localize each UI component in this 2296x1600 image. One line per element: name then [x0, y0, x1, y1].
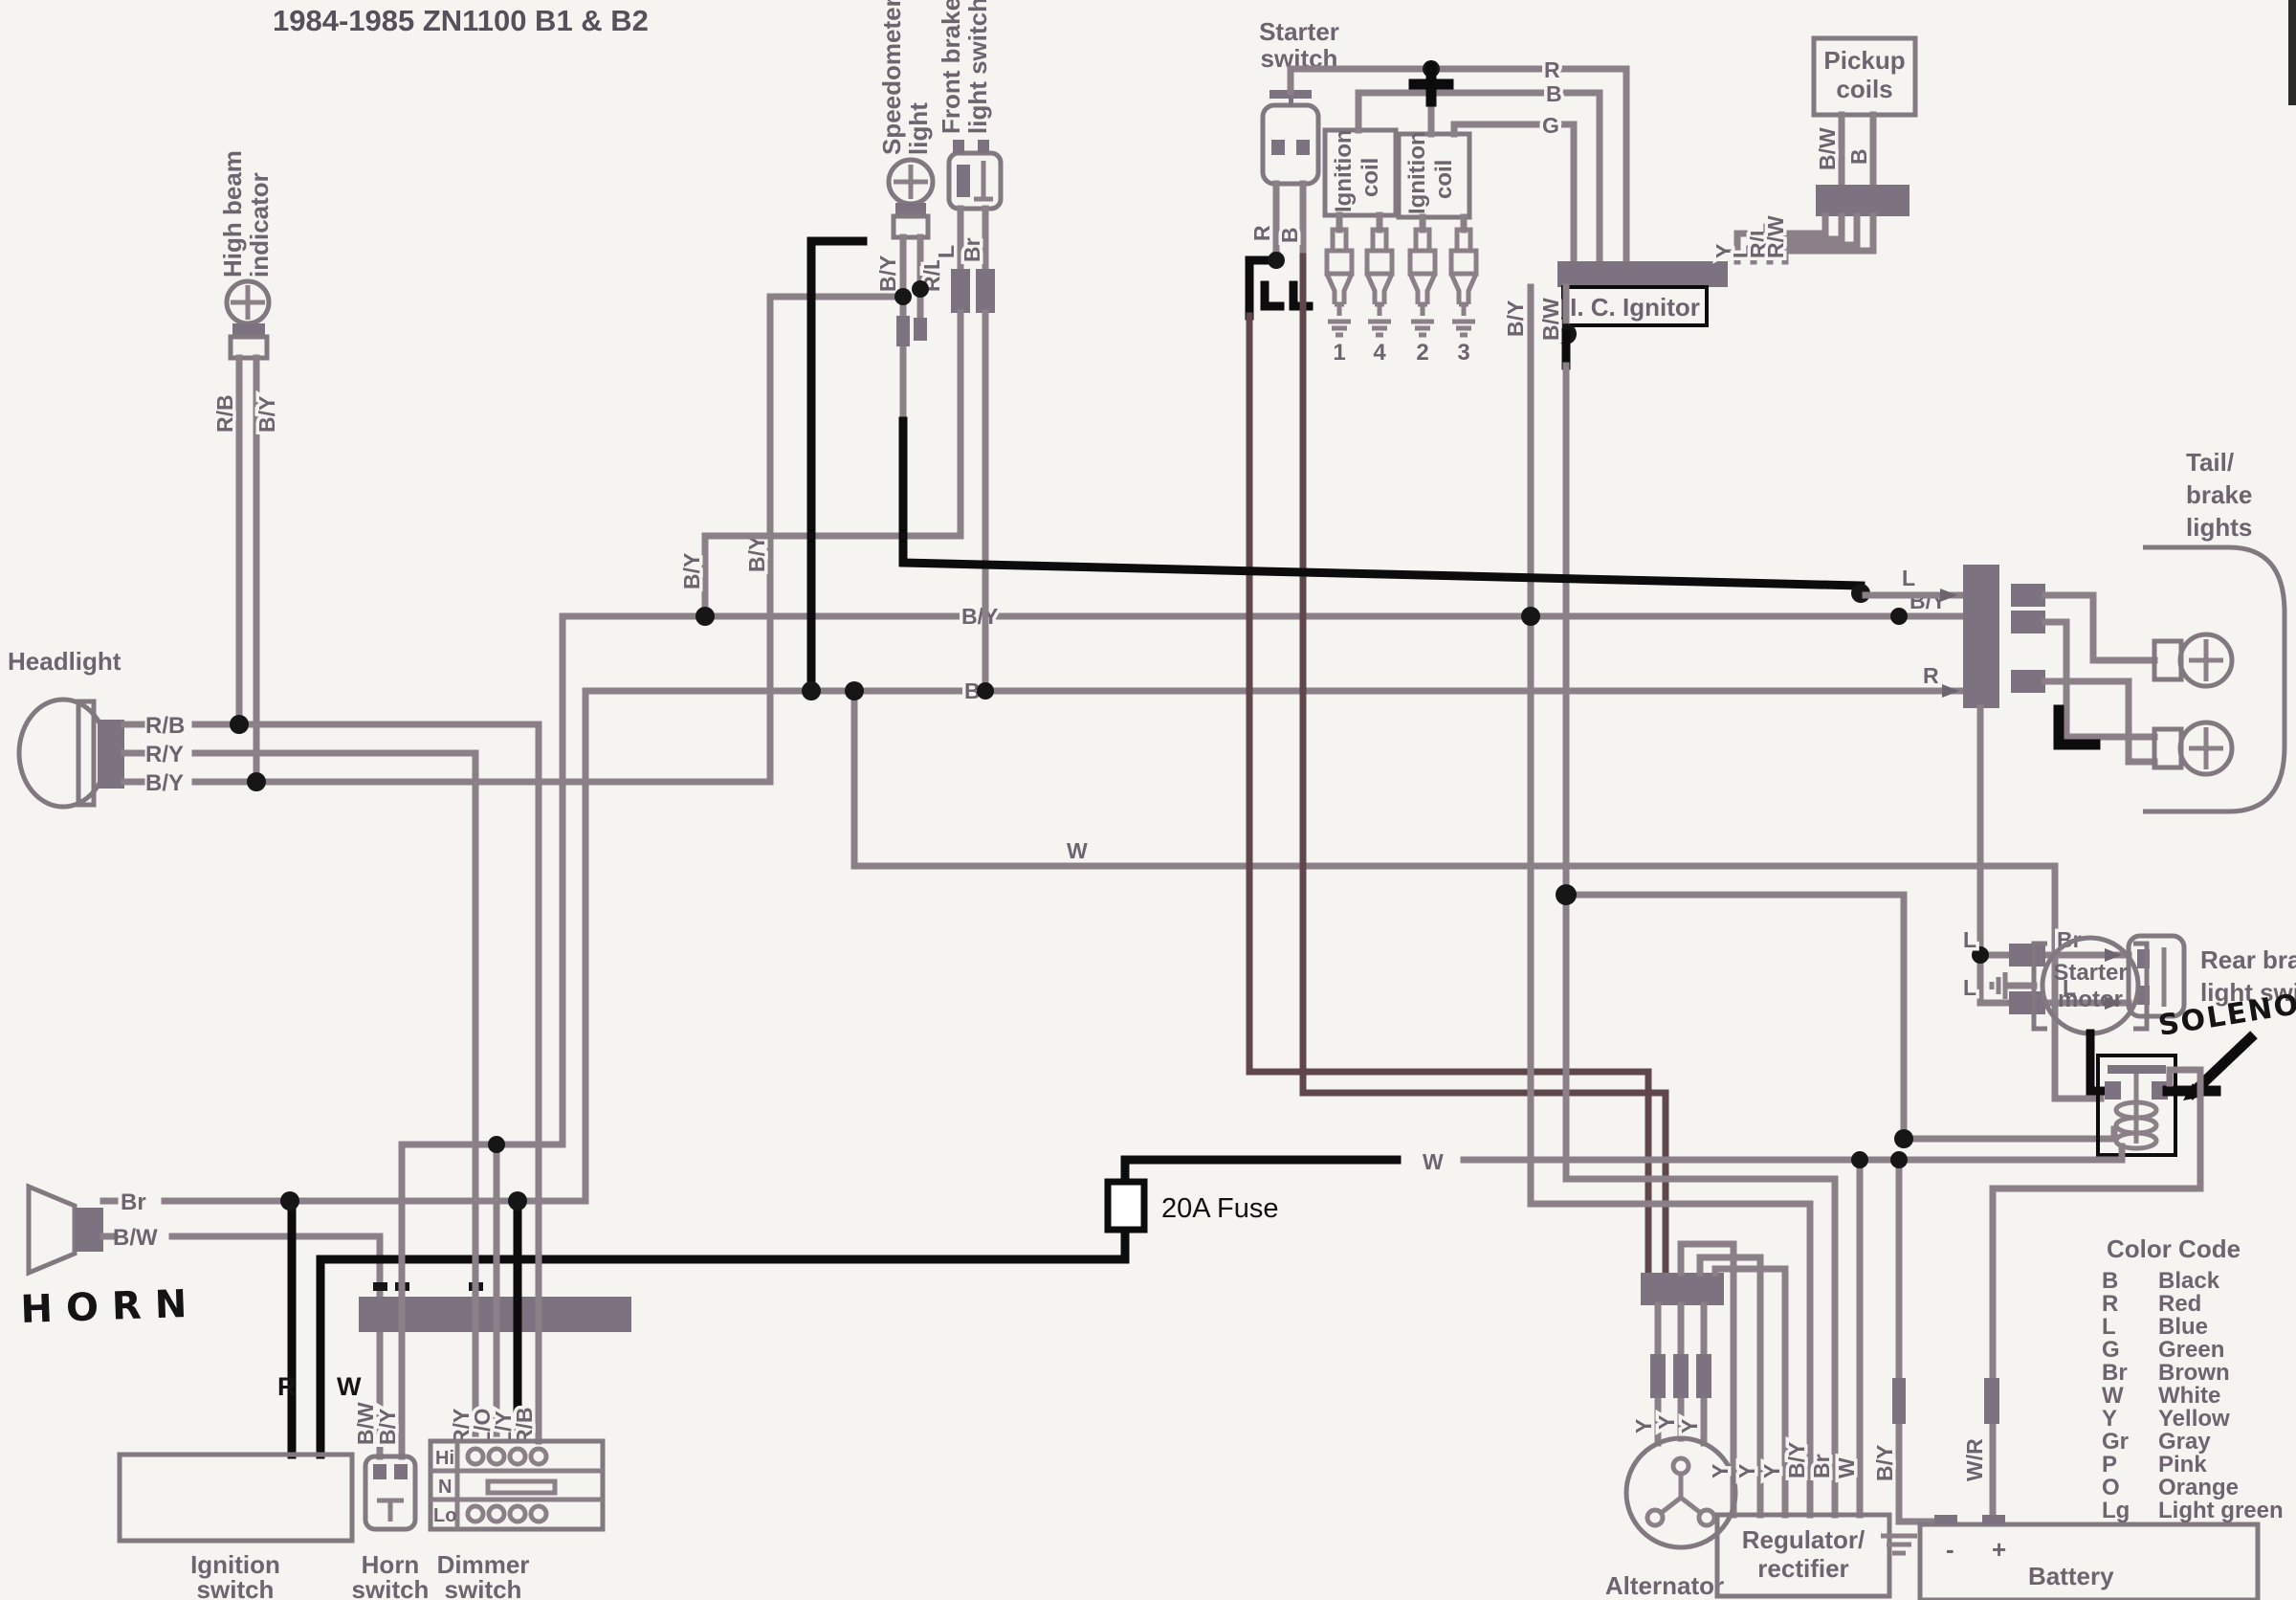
starter-switch-wire-b: B: [1277, 227, 1302, 243]
starter-motor-label-1: Starter: [2053, 960, 2127, 986]
alternator-wire-y1: Y: [1631, 1419, 1656, 1433]
high-beam-wire-by: B/Y: [254, 396, 279, 433]
scan-edge-artifact: [2288, 0, 2296, 105]
starter-switch-label-1: Starter: [1259, 17, 1339, 46]
legend-code: Br: [2102, 1360, 2128, 1386]
reg-wire-w: W: [1834, 1457, 1859, 1478]
ignitor-left-by: B/Y: [1503, 300, 1528, 337]
high-beam-indicator: R/B B/Y High beam indicator: [212, 150, 279, 782]
front-brake-light-switch: L Br Front brake light switch B/Y: [679, 0, 1001, 691]
alternator-wire-y2: Y: [1654, 1415, 1679, 1430]
reg-wire-y3: Y: [1759, 1464, 1784, 1478]
speedo-label-1: Speedometer: [877, 0, 906, 155]
legend-name: Orange: [2158, 1475, 2239, 1500]
wire-label-by-bus: B/Y: [961, 604, 998, 629]
front-brake-label-2: light switch: [963, 0, 992, 134]
front-brake-label-1: Front brake: [937, 0, 965, 134]
horn-wire-bw: B/W: [113, 1225, 158, 1251]
high-beam-wire-rb: R/B: [212, 394, 237, 433]
alternator-label: Alternator: [1605, 1571, 1724, 1600]
legend-code: R: [2102, 1291, 2118, 1317]
high-beam-label-2: indicator: [245, 172, 274, 278]
tail-label-2: brake: [2186, 480, 2252, 509]
horn-switch-wire-by: B/Y: [375, 1409, 400, 1445]
spark-plugs: 1 4 2 3: [1327, 215, 1476, 366]
legend-code: B: [2102, 1268, 2118, 1294]
dimmer-pos-lo: Lo: [433, 1505, 456, 1526]
alternator-wire-y3: Y: [1677, 1419, 1702, 1433]
headlight: Headlight R/B R/Y B/Y: [8, 647, 770, 807]
legend-name: Light green: [2158, 1498, 2284, 1523]
reg-wire-y2: Y: [1734, 1464, 1759, 1478]
coil-bus-r: R: [1544, 57, 1560, 82]
wire-label-l-tail: L: [1902, 566, 1915, 590]
page-title: 1984-1985 ZN1100 B1 & B2: [273, 4, 649, 37]
legend-code: Y: [2102, 1406, 2117, 1432]
legend-name: Pink: [2158, 1452, 2207, 1478]
legend-code: P: [2102, 1452, 2117, 1478]
high-beam-label-1: High beam: [218, 150, 247, 278]
ignition-coil-2-label-1: Ignition: [1404, 131, 1430, 214]
wiring-diagram-page: 1984-1985 ZN1100 B1 & B2 B/Y Br W B/Y R …: [0, 0, 2296, 1600]
legend-code: O: [2102, 1475, 2120, 1500]
dimmer-pos-n: N: [438, 1477, 452, 1498]
rear-brake-label-1: Rear brake: [2200, 945, 2296, 974]
coil-bus-b: B: [1546, 81, 1562, 106]
rear-brake-wire-l2: L: [1963, 975, 1976, 1000]
color-code-legend: Color Code BBlack RRed LBlue GGreen BrBr…: [2102, 1234, 2284, 1523]
headlight-label: Headlight: [8, 647, 121, 676]
ignition-coil-1-label-1: Ignition: [1331, 129, 1357, 212]
legend-code: Gr: [2102, 1429, 2129, 1455]
legend-name: Red: [2158, 1291, 2201, 1317]
legend-name: White: [2158, 1383, 2220, 1409]
front-brake-wire-l: L: [934, 245, 959, 258]
ignition-coil-2-label-2: coil: [1431, 160, 1457, 199]
ignition-coil-1-label-2: coil: [1358, 158, 1383, 197]
headlight-wire-by: B/Y: [145, 770, 184, 796]
dimmer-switch: R/Y L/O L/Y R/B Hi N Lo Dimmer switch: [430, 724, 603, 1600]
horn-wire-br: Br: [121, 1189, 146, 1215]
wire-label-w-bus: W: [1067, 838, 1088, 863]
rear-brake-wire-l1: L: [1963, 927, 1976, 952]
pickup-label-2: coils: [1836, 75, 1892, 103]
horn-switch: B/W B/Y Horn switch: [352, 1144, 430, 1600]
speedo-label-2: light: [904, 102, 933, 155]
pickup-wire-b: B: [1846, 148, 1871, 165]
legend-name: Brown: [2158, 1360, 2230, 1386]
battery-neg: -: [1946, 1535, 1954, 1564]
tail-label-3: lights: [2186, 513, 2252, 542]
headlight-wire-rb: R/B: [145, 713, 185, 739]
ignition-wire-r: R: [277, 1372, 297, 1401]
reg-wire-br: Br: [1809, 1454, 1834, 1478]
plug-number-4: 4: [1373, 340, 1386, 366]
plug-number-3: 3: [1457, 340, 1469, 366]
junction-dots: [230, 280, 1913, 1148]
plug-number-1: 1: [1333, 340, 1345, 366]
ignitor-wire-rw: R/W: [1763, 215, 1788, 258]
plug-number-2: 2: [1416, 340, 1428, 366]
starter-switch-wire-r: R: [1249, 225, 1274, 241]
ignition-wire-w: W: [337, 1372, 362, 1401]
speedo-wire-by: B/Y: [875, 256, 900, 292]
regulator-label-1: Regulator/: [1742, 1525, 1865, 1554]
ic-ignitor-label: I. C. Ignitor: [1570, 293, 1700, 322]
headlight-wire-ry: R/Y: [145, 742, 184, 767]
wire-label-w-fuse: W: [1423, 1149, 1444, 1174]
legend-code: W: [2102, 1383, 2124, 1409]
engine-harness-wires: [1249, 256, 1666, 1273]
legend-title: Color Code: [2107, 1234, 2241, 1263]
dimmer-label-2: switch: [445, 1575, 522, 1600]
legend-name: Blue: [2158, 1314, 2208, 1340]
legend-name: Gray: [2158, 1429, 2211, 1455]
battery-wire-wr: W/R: [1962, 1438, 1987, 1481]
legend-code: L: [2102, 1314, 2116, 1340]
tail-label-1: Tail/: [2186, 448, 2234, 477]
riser-label-by-2: B/Y: [744, 536, 769, 572]
ignitor-left-bw: B/W: [1538, 298, 1563, 341]
legend-code: Lg: [2102, 1498, 2130, 1523]
wiring-diagram: 1984-1985 ZN1100 B1 & B2 B/Y Br W B/Y R …: [0, 0, 2296, 1600]
horn-label: HORN: [20, 1281, 201, 1332]
reg-wire-y1: Y: [1708, 1464, 1733, 1478]
ic-ignitor: I. C. Ignitor Y L R/L R/W B/Y B/W: [1503, 215, 2114, 1204]
coil-bus-g: G: [1542, 113, 1559, 138]
legend-code: G: [2102, 1337, 2120, 1363]
fuse-label: 20A Fuse: [1161, 1193, 1279, 1224]
battery-wire-by: B/Y: [1872, 1445, 1897, 1481]
pickup-wire-bw: B/W: [1815, 127, 1840, 170]
dimmer-pos-hi: Hi: [435, 1448, 454, 1469]
starter-motor-label-2: motor: [2058, 987, 2123, 1012]
ignition-switch-label-2: switch: [197, 1575, 275, 1600]
battery-label: Battery: [2028, 1562, 2114, 1590]
battery-pos: +: [1992, 1535, 2006, 1564]
front-brake-wire-br: Br: [960, 237, 984, 262]
horn-switch-label-2: switch: [352, 1575, 430, 1600]
speedometer-light: B/Y R/L Speedometer light B/Y: [744, 0, 944, 782]
legend-name: Green: [2158, 1337, 2224, 1363]
wire-label-r-tail: R: [1923, 663, 1939, 688]
riser-label-by-1: B/Y: [679, 553, 704, 589]
ignition-switch: R W Ignition switch: [120, 1160, 1397, 1600]
legend-name: Black: [2158, 1268, 2220, 1294]
tail-brake-lights: Tail/ brake lights: [1963, 448, 2285, 811]
regulator-label-2: rectifier: [1757, 1554, 1848, 1583]
legend-name: Yellow: [2158, 1406, 2230, 1432]
pickup-label-1: Pickup: [1823, 46, 1905, 75]
reg-wire-by: B/Y: [1784, 1442, 1809, 1478]
